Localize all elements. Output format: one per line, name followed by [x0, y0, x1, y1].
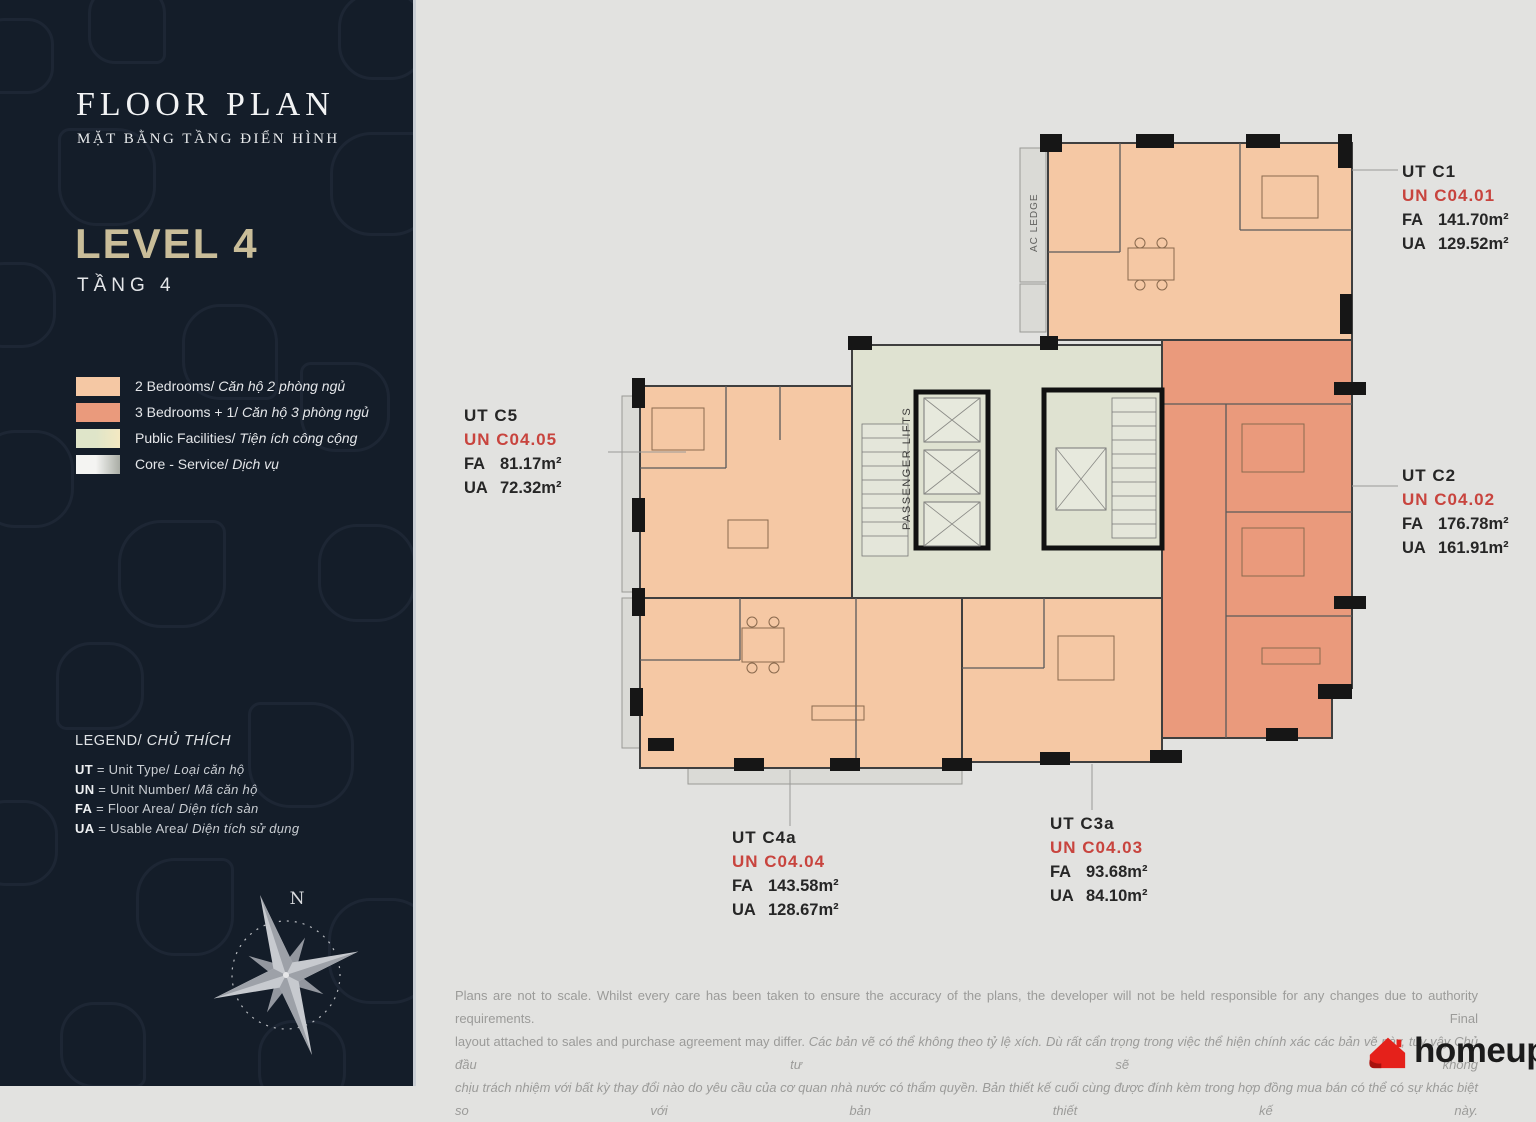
area-key: FA [1050, 860, 1086, 884]
unit-type: UT C5 [464, 404, 561, 428]
disclaimer-line-3: chịu trách nhiệm với bất kỳ thay đổi nào… [455, 1076, 1478, 1122]
disclaimer-line-1: Plans are not to scale. Whilst every car… [455, 984, 1478, 1030]
unit-type: UT C4a [732, 826, 839, 850]
unit-label-c4a: UT C4a UN C04.04 FA143.58m² UA128.67m² [732, 826, 839, 922]
unit-type: UT C1 [1402, 160, 1509, 184]
unit-areas [640, 143, 1352, 768]
unit-number: UN C04.04 [732, 850, 839, 874]
unit-c1-area [1048, 143, 1352, 340]
unit-label-c5: UT C5 UN C04.05 FA81.17m² UA72.32m² [464, 404, 561, 500]
area-key: FA [464, 452, 500, 476]
unit-type: UT C2 [1402, 464, 1509, 488]
ac-ledge-label: AC LEDGE [1029, 193, 1040, 252]
unit-number: UN C04.05 [464, 428, 561, 452]
homeup-logo-icon [1366, 1030, 1408, 1072]
floor-plan-drawing: AC LEDGE PASSENGER LIFTS [0, 0, 1536, 1086]
floor-area-row: FA176.78m² [1402, 512, 1509, 536]
area-value: 176.78m² [1438, 515, 1509, 533]
unit-c2-area [1162, 340, 1352, 738]
area-value: 161.91m² [1438, 539, 1509, 557]
unit-number: UN C04.01 [1402, 184, 1509, 208]
floor-area-row: FA143.58m² [732, 874, 839, 898]
usable-area-row: UA128.67m² [732, 898, 839, 922]
area-key: FA [1402, 208, 1438, 232]
unit-number: UN C04.02 [1402, 488, 1509, 512]
passenger-lifts-label: PASSENGER LIFTS [901, 407, 913, 530]
homeup-logo-text: homeup [1414, 1031, 1536, 1071]
homeup-logo: homeup [1366, 1030, 1536, 1072]
area-key: UA [1402, 536, 1438, 560]
disclaimer: Plans are not to scale. Whilst every car… [455, 984, 1478, 1122]
floor-area-row: FA141.70m² [1402, 208, 1509, 232]
unit-number: UN C04.03 [1050, 836, 1147, 860]
area-key: UA [1050, 884, 1086, 908]
area-key: FA [732, 874, 768, 898]
area-value: 129.52m² [1438, 235, 1509, 253]
area-value: 143.58m² [768, 877, 839, 895]
area-key: UA [1402, 232, 1438, 256]
area-value: 81.17m² [500, 455, 561, 473]
unit-c4a-area [640, 598, 962, 768]
usable-area-row: UA161.91m² [1402, 536, 1509, 560]
usable-area-row: UA129.52m² [1402, 232, 1509, 256]
area-key: UA [464, 476, 500, 500]
floor-area-row: FA81.17m² [464, 452, 561, 476]
disclaimer-line-2: layout attached to sales and purchase ag… [455, 1030, 1478, 1076]
lift-bank [916, 392, 988, 548]
disclaimer-line-2-en: layout attached to sales and purchase ag… [455, 1034, 809, 1049]
usable-area-row: UA72.32m² [464, 476, 561, 500]
floor-area-row: FA93.68m² [1050, 860, 1147, 884]
unit-label-c2: UT C2 UN C04.02 FA176.78m² UA161.91m² [1402, 464, 1509, 560]
area-key: FA [1402, 512, 1438, 536]
unit-label-c1: UT C1 UN C04.01 FA141.70m² UA129.52m² [1402, 160, 1509, 256]
unit-type: UT C3a [1050, 812, 1147, 836]
unit-c5-area [640, 386, 855, 598]
unit-label-c3a: UT C3a UN C04.03 FA93.68m² UA84.10m² [1050, 812, 1147, 908]
area-value: 93.68m² [1086, 863, 1147, 881]
area-key: UA [732, 898, 768, 922]
area-value: 84.10m² [1086, 887, 1147, 905]
stairs-right [1112, 398, 1156, 538]
area-value: 141.70m² [1438, 211, 1509, 229]
area-value: 128.67m² [768, 901, 839, 919]
floor-plan-page: { "colors": { "sidebar_bg": "#141d29", "… [0, 0, 1536, 1086]
area-value: 72.32m² [500, 479, 561, 497]
usable-area-row: UA84.10m² [1050, 884, 1147, 908]
